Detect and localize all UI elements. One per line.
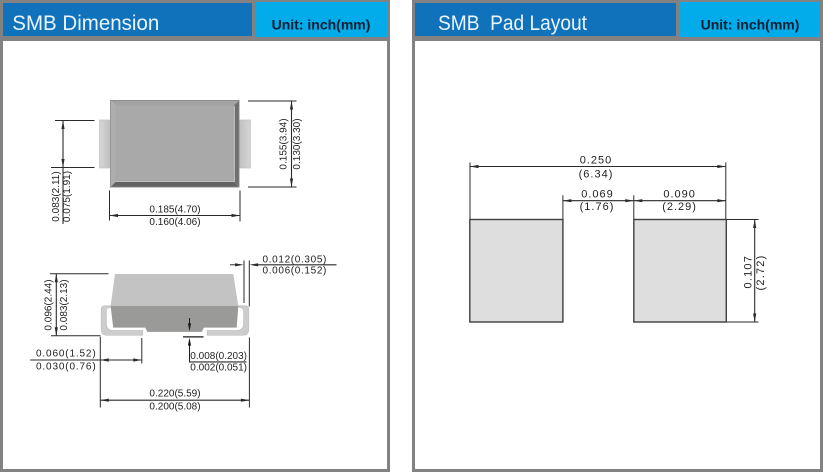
svg-text:0.155(3.94): 0.155(3.94) — [279, 118, 290, 169]
svg-text:SMB Dimension: SMB Dimension — [12, 11, 159, 35]
svg-text:0.250: 0.250 — [580, 154, 613, 166]
svg-text:0.220(5.59): 0.220(5.59) — [149, 388, 200, 399]
svg-text:Unit: inch(mm): Unit: inch(mm) — [701, 17, 800, 33]
svg-text:(2.29): (2.29) — [662, 201, 697, 213]
svg-text:0.075(1.91): 0.075(1.91) — [62, 171, 73, 222]
svg-text:0.185(4.70): 0.185(4.70) — [149, 204, 200, 215]
svg-text:0.006(0.152): 0.006(0.152) — [263, 265, 328, 276]
svg-text:0.083(2.11): 0.083(2.11) — [51, 171, 62, 221]
svg-text:Unit: inch(mm): Unit: inch(mm) — [272, 17, 371, 33]
svg-text:0.107: 0.107 — [742, 255, 754, 289]
svg-text:0.083(2.13): 0.083(2.13) — [59, 279, 70, 330]
svg-text:0.060(1.52): 0.060(1.52) — [36, 348, 97, 359]
svg-text:0.069: 0.069 — [581, 188, 614, 200]
svg-text:(2.72): (2.72) — [755, 255, 767, 291]
svg-text:0.012(0.305): 0.012(0.305) — [263, 254, 328, 265]
svg-text:0.160(4.06): 0.160(4.06) — [149, 217, 200, 228]
svg-text:0.002(0.051): 0.002(0.051) — [190, 363, 247, 374]
svg-text:0.200(5.08): 0.200(5.08) — [149, 401, 200, 412]
svg-text:0.030(0.76): 0.030(0.76) — [36, 362, 97, 373]
svg-text:(1.76): (1.76) — [580, 201, 615, 213]
svg-text:0.130(3.30): 0.130(3.30) — [292, 118, 303, 169]
svg-text:0.008(0.203): 0.008(0.203) — [190, 351, 247, 362]
svg-text:0.096(2.44): 0.096(2.44) — [44, 279, 55, 330]
svg-text:0.090: 0.090 — [663, 188, 696, 200]
svg-text:SMB Pad Layout: SMB Pad Layout — [438, 11, 587, 35]
svg-text:(6.34): (6.34) — [579, 169, 614, 181]
